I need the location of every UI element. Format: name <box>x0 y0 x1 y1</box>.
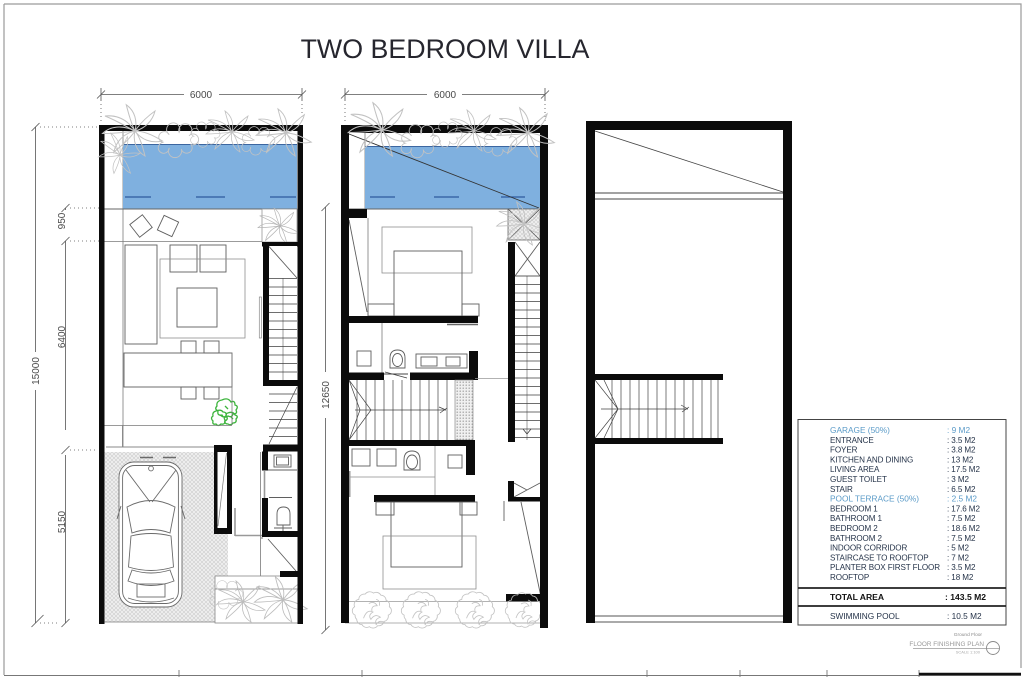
svg-text:: 7 M2: : 7 M2 <box>947 553 969 562</box>
svg-text:: 3 M2: : 3 M2 <box>947 475 969 484</box>
svg-text:: 17.5 M2: : 17.5 M2 <box>947 465 980 474</box>
svg-text:6400: 6400 <box>57 325 68 348</box>
svg-text:KITCHEN AND DINING: KITCHEN AND DINING <box>830 455 913 464</box>
svg-text:PLANTER BOX FIRST FLOOR: PLANTER BOX FIRST FLOOR <box>830 563 940 572</box>
svg-text:GUEST TOILET: GUEST TOILET <box>830 475 887 484</box>
svg-text:ROOFTOP: ROOFTOP <box>830 573 869 582</box>
svg-text:FOYER: FOYER <box>830 446 858 455</box>
svg-text:BATHROOM 2: BATHROOM 2 <box>830 534 883 543</box>
svg-text:: 7.5 M2: : 7.5 M2 <box>947 514 976 523</box>
svg-text:6000: 6000 <box>190 90 213 101</box>
svg-text:BEDROOM 2: BEDROOM 2 <box>830 524 878 533</box>
svg-text:LIVING AREA: LIVING AREA <box>830 465 880 474</box>
svg-text:STAIRCASE TO ROOFTOP: STAIRCASE TO ROOFTOP <box>830 553 929 562</box>
svg-text:: 13 M2: : 13 M2 <box>947 455 974 464</box>
svg-text:5150: 5150 <box>57 510 68 533</box>
svg-text:SCALE 1:100: SCALE 1:100 <box>956 650 981 655</box>
svg-text:15000: 15000 <box>31 357 42 385</box>
svg-text:BEDROOM 1: BEDROOM 1 <box>830 504 878 513</box>
svg-text:INDOOR CORRIDOR: INDOOR CORRIDOR <box>830 544 907 553</box>
svg-text:: 3.5 M2: : 3.5 M2 <box>947 563 976 572</box>
svg-text:TWO BEDROOM VILLA: TWO BEDROOM VILLA <box>301 34 590 64</box>
svg-text:: 9 M2: : 9 M2 <box>947 425 970 435</box>
svg-text:BATHROOM 1: BATHROOM 1 <box>830 514 883 523</box>
svg-text:: 17.6 M2: : 17.6 M2 <box>947 504 980 513</box>
svg-text:TOTAL AREA: TOTAL AREA <box>830 592 884 602</box>
svg-text:: 143.5 M2: : 143.5 M2 <box>945 592 986 602</box>
svg-text:GARAGE (50%): GARAGE (50%) <box>830 425 890 435</box>
svg-text:: 10.5 M2: : 10.5 M2 <box>947 611 982 621</box>
svg-text:FLOOR FINISHING PLAN: FLOOR FINISHING PLAN <box>909 641 984 648</box>
svg-text:: 18 M2: : 18 M2 <box>947 573 974 582</box>
svg-text:: 7.5 M2: : 7.5 M2 <box>947 534 976 543</box>
svg-text:Ground Floor: Ground Floor <box>954 632 983 638</box>
svg-text:: 3.5 M2: : 3.5 M2 <box>947 436 976 445</box>
svg-text:SWIMMING POOL: SWIMMING POOL <box>830 611 900 621</box>
svg-text:: 6.5 M2: : 6.5 M2 <box>947 485 976 494</box>
svg-text:: 3.8 M2: : 3.8 M2 <box>947 446 976 455</box>
svg-text:12650: 12650 <box>321 381 332 409</box>
svg-text:950: 950 <box>57 212 68 229</box>
svg-text:: 18.6 M2: : 18.6 M2 <box>947 524 980 533</box>
svg-text:ENTRANCE: ENTRANCE <box>830 436 874 445</box>
svg-text:STAIR: STAIR <box>830 485 853 494</box>
svg-text:: 5 M2: : 5 M2 <box>947 544 969 553</box>
svg-text:: 2.5 M2: : 2.5 M2 <box>947 494 977 504</box>
svg-text:6000: 6000 <box>434 90 457 101</box>
svg-text:POOL TERRACE (50%): POOL TERRACE (50%) <box>830 494 919 504</box>
